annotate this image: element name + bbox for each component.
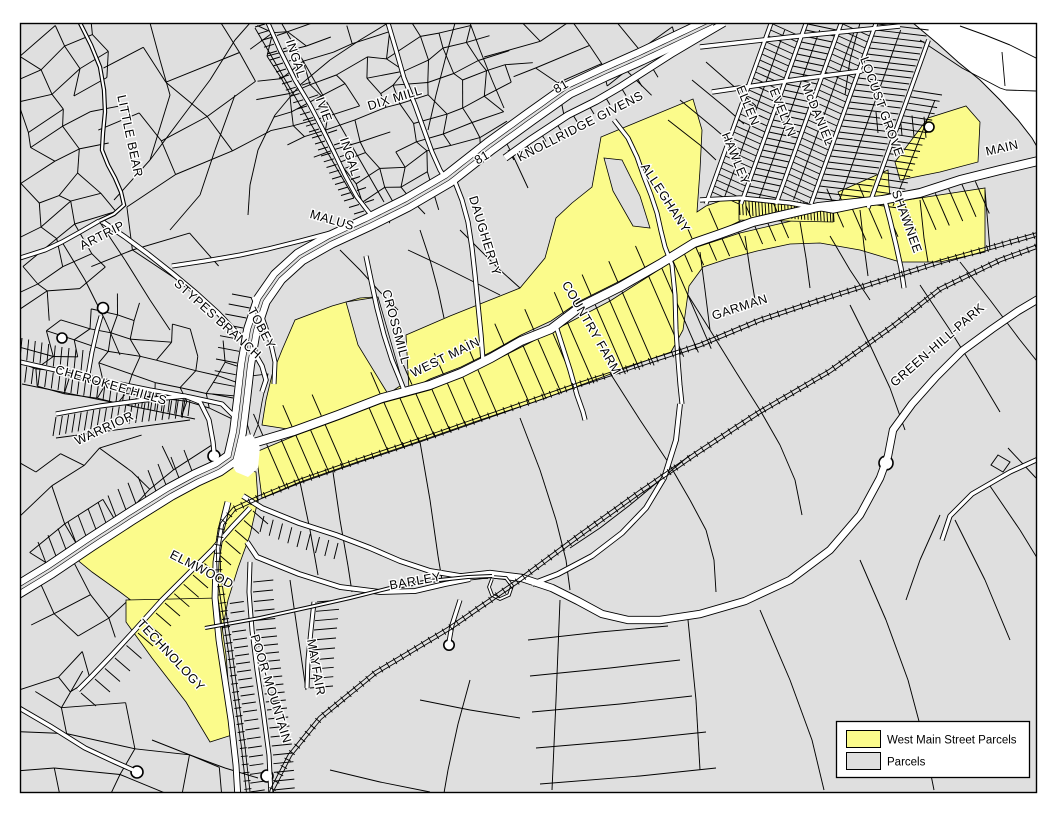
svg-text:Parcels: Parcels: [887, 757, 926, 769]
svg-text:West Main Street Parcels: West Main Street Parcels: [887, 735, 1017, 747]
